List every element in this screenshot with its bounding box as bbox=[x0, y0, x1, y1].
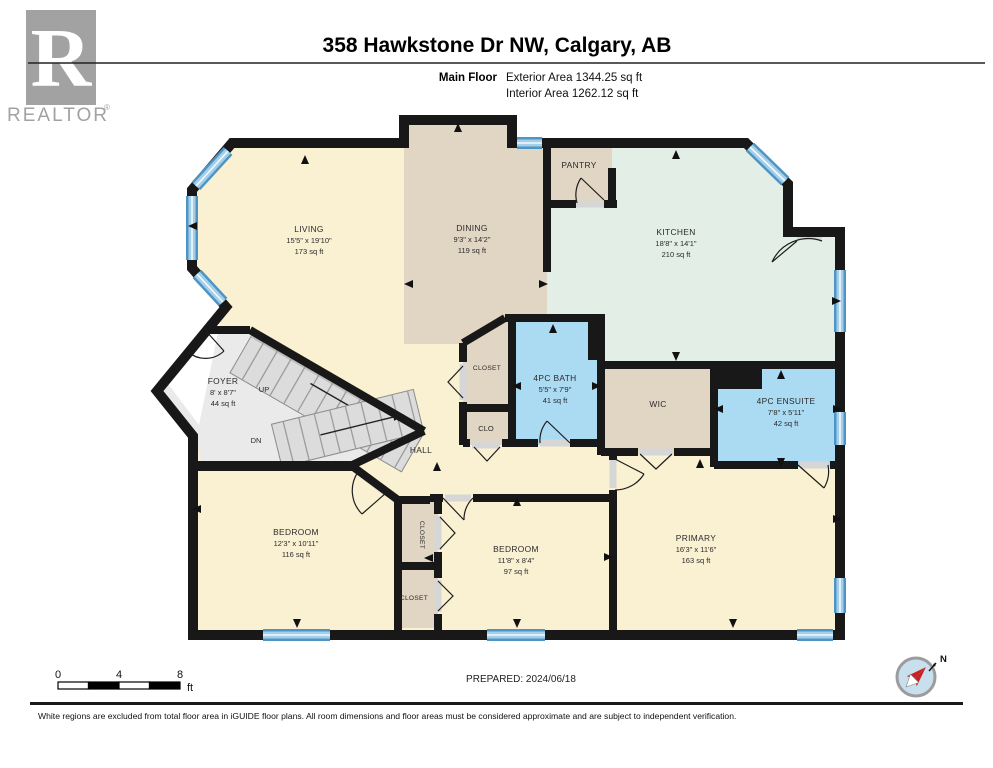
stairs-down-label: DN bbox=[251, 436, 262, 445]
room-bedroom2-area: 97 sq ft bbox=[504, 567, 530, 576]
room-closet-bed1b-label: CLOSET bbox=[400, 595, 428, 602]
floor-plan-page: R REALTOR ® 358 Hawkstone Dr NW, Calgary… bbox=[0, 0, 993, 768]
room-bath-dims: 5'5" x 7'9" bbox=[539, 385, 572, 394]
room-living-dims: 15'5" x 19'10" bbox=[286, 236, 332, 245]
room-hall-label: HALL bbox=[410, 445, 432, 455]
exterior-area: Exterior Area 1344.25 sq ft bbox=[506, 72, 643, 84]
room-primary-dims: 16'3" x 11'6" bbox=[676, 545, 717, 554]
room-bedroom2-dims: 11'8" x 8'4" bbox=[498, 556, 535, 565]
room-pantry-floor bbox=[547, 143, 612, 204]
room-dining-area: 119 sq ft bbox=[458, 246, 487, 255]
footer-divider bbox=[30, 702, 963, 705]
room-dining-label: DINING bbox=[456, 223, 487, 233]
scale-unit: ft bbox=[187, 682, 193, 694]
header: R REALTOR ® 358 Hawkstone Dr NW, Calgary… bbox=[7, 10, 985, 126]
room-primary-label: PRIMARY bbox=[676, 533, 717, 543]
room-kitchen-area: 210 sq ft bbox=[662, 250, 692, 259]
room-dining-dims: 9'3" x 14'2" bbox=[454, 235, 491, 244]
scale-tick-8: 8 bbox=[177, 669, 183, 681]
room-foyer-area: 44 sq ft bbox=[211, 399, 237, 408]
room-primary-area: 163 sq ft bbox=[682, 556, 712, 565]
room-closet-hall-label: CLOSET bbox=[473, 365, 501, 372]
page-title: 358 Hawkstone Dr NW, Calgary, AB bbox=[323, 34, 672, 57]
room-bath-area: 41 sq ft bbox=[543, 396, 569, 405]
bath-wall-notch bbox=[588, 314, 602, 360]
room-closet-bed1-label: CLOSET bbox=[418, 521, 425, 549]
room-pantry-label: PANTRY bbox=[561, 160, 596, 170]
floor-label: Main Floor bbox=[439, 72, 498, 84]
interior-area: Interior Area 1262.12 sq ft bbox=[506, 88, 639, 100]
room-bedroom1-label: BEDROOM bbox=[273, 527, 319, 537]
room-bedroom1-dims: 12'3" x 10'11" bbox=[274, 539, 319, 548]
prepared-date: PREPARED: 2024/06/18 bbox=[466, 674, 576, 685]
room-foyer-label: FOYER bbox=[208, 376, 239, 386]
compass-north-label: N bbox=[940, 654, 947, 665]
room-ensuite-label: 4PC ENSUITE bbox=[757, 396, 816, 406]
ensuite-wall-notch bbox=[716, 361, 762, 389]
realtor-logo-word: REALTOR bbox=[7, 105, 109, 126]
room-living-area: 173 sq ft bbox=[295, 247, 325, 256]
room-clo-label: CLO bbox=[478, 424, 494, 433]
floor-plan-canvas: R REALTOR ® 358 Hawkstone Dr NW, Calgary… bbox=[0, 0, 993, 768]
room-wic-label: WIC bbox=[649, 399, 666, 409]
room-bedroom2-label: BEDROOM bbox=[493, 544, 539, 554]
disclaimer-text: White regions are excluded from total fl… bbox=[38, 711, 736, 721]
scale-tick-0: 0 bbox=[55, 669, 61, 681]
scale-bar: 0 4 8 ft bbox=[55, 669, 193, 694]
compass-icon: N bbox=[897, 654, 947, 696]
scale-tick-4: 4 bbox=[116, 669, 122, 681]
room-bath-label: 4PC BATH bbox=[533, 373, 576, 383]
realtor-logo-letter: R bbox=[31, 12, 93, 105]
room-living-label: LIVING bbox=[294, 224, 324, 234]
room-ensuite-dims: 7'8" x 5'11" bbox=[768, 408, 805, 417]
footer: 0 4 8 ft PREPARED: 2024/06/18 N White re… bbox=[30, 654, 963, 721]
room-kitchen-label: KITCHEN bbox=[656, 227, 695, 237]
room-kitchen-dims: 18'8" x 14'1" bbox=[655, 239, 696, 248]
realtor-logo-reg: ® bbox=[104, 103, 110, 112]
stairs-up-label: UP bbox=[259, 385, 269, 394]
room-bedroom1-area: 116 sq ft bbox=[282, 550, 311, 559]
room-foyer-dims: 8' x 8'7" bbox=[210, 388, 236, 397]
room-ensuite-area: 42 sq ft bbox=[774, 419, 800, 428]
